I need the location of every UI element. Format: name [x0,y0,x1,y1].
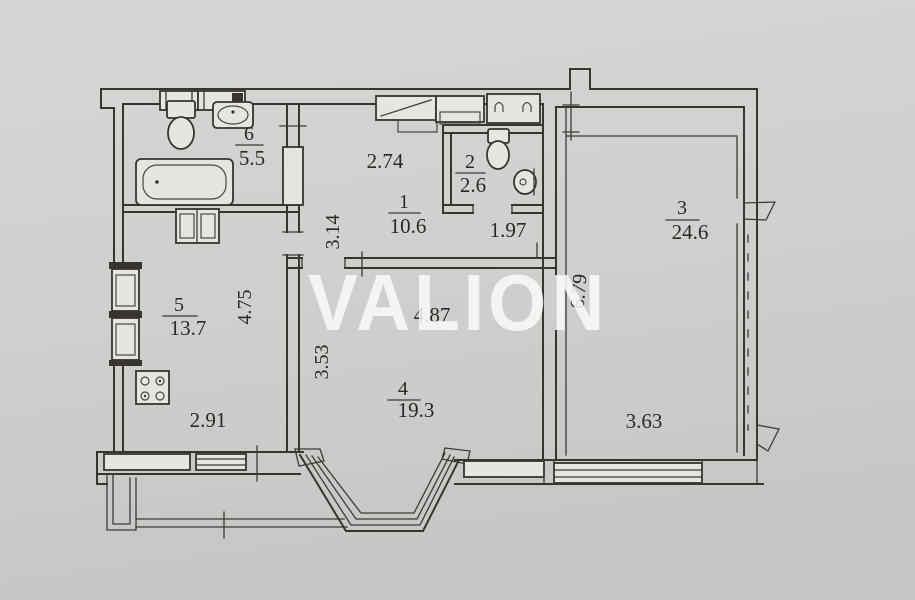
window [554,463,702,483]
room-4-area: 19.3 [398,398,435,422]
room-6-area: 5.5 [239,146,265,170]
window [196,454,246,470]
window [104,454,190,470]
left-wall-windows [109,262,142,366]
room-2-area: 2.6 [460,173,486,197]
toilet-icon [167,101,195,149]
dim-wc-width: 1.97 [490,218,527,242]
room-2-number: 2 [465,151,475,173]
coat-hooks-icon [487,94,540,123]
room-3-number: 3 [677,197,687,219]
dim-room3-bottom-width: 3.63 [626,409,663,433]
dim-kitchen-depth: 4.75 [234,290,256,325]
bathroom-door [283,147,303,205]
dim-hall-depth: 3.14 [322,215,344,250]
room-1-area: 10.6 [390,214,427,238]
room-4-number: 4 [398,378,408,400]
toilet-icon [487,129,509,169]
room-5-number: 5 [174,294,184,316]
floor-plan-photo: 6 5.5 2.74 1 10.6 3.14 2 2.6 1.97 3 24.6… [0,0,915,600]
stove-icon [136,371,169,404]
dim-hall-width: 2.74 [367,149,404,173]
room-5-area: 13.7 [170,316,207,340]
room-3-area: 24.6 [672,220,709,244]
bathtub-icon [136,159,233,205]
cabinet-icon [176,209,219,243]
floor-plan-drawing: 6 5.5 2.74 1 10.6 3.14 2 2.6 1.97 3 24.6… [0,0,915,600]
sink-icon [514,169,536,195]
shelf-icon [436,96,484,124]
window [464,461,544,477]
valion-watermark: VALION [308,258,608,347]
dim-room4-left-depth: 3.53 [311,345,333,380]
room-1-number: 1 [399,191,409,213]
room-6-number: 6 [244,123,254,145]
dim-kitchen-width: 2.91 [190,408,227,432]
